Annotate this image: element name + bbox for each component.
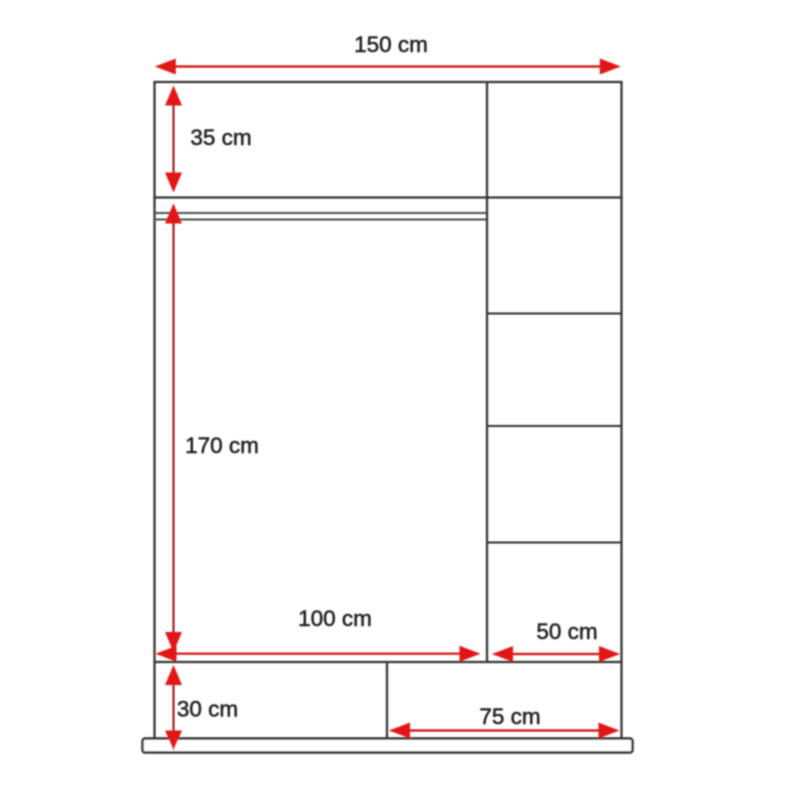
- svg-text:35 cm: 35 cm: [190, 125, 251, 150]
- svg-text:30 cm: 30 cm: [177, 697, 238, 722]
- svg-text:100 cm: 100 cm: [298, 606, 372, 631]
- svg-text:50 cm: 50 cm: [536, 619, 597, 644]
- svg-text:170 cm: 170 cm: [185, 433, 259, 458]
- svg-text:75 cm: 75 cm: [479, 704, 540, 729]
- svg-text:150 cm: 150 cm: [354, 32, 428, 57]
